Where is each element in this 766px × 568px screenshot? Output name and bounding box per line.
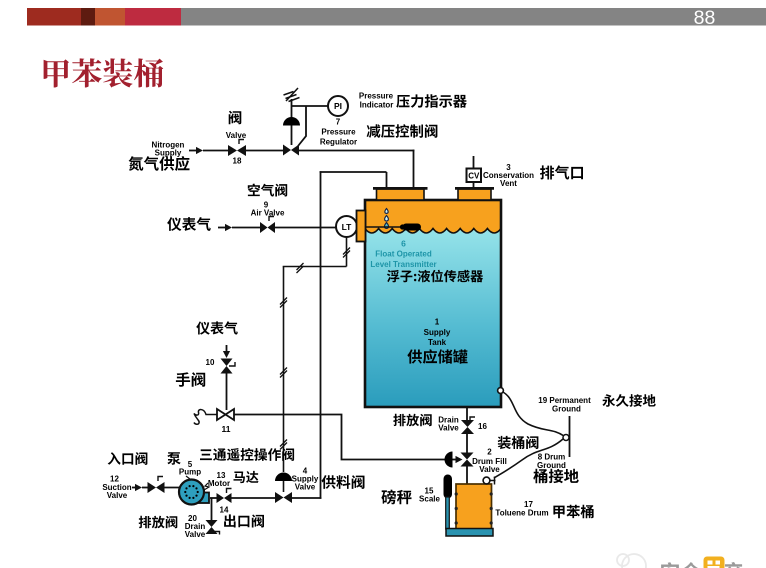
svg-text:Valve: Valve xyxy=(226,131,247,140)
svg-text:Vent: Vent xyxy=(500,179,517,188)
svg-text:1: 1 xyxy=(435,318,440,327)
svg-text:Scale: Scale xyxy=(419,495,440,504)
svg-text:Float Operated: Float Operated xyxy=(375,250,432,259)
svg-text:Ground: Ground xyxy=(552,405,581,414)
svg-text:Valve: Valve xyxy=(185,530,206,539)
svg-text:Regulator: Regulator xyxy=(320,138,357,147)
svg-text:2: 2 xyxy=(487,448,492,457)
svg-text:6: 6 xyxy=(401,239,406,249)
svg-text:Ground: Ground xyxy=(537,461,566,470)
svg-text:Pressure: Pressure xyxy=(321,128,356,137)
svg-text:Supply: Supply xyxy=(155,149,182,158)
svg-text:Motor: Motor xyxy=(208,479,230,488)
svg-text:Pressure: Pressure xyxy=(359,92,394,101)
svg-text:Indicator: Indicator xyxy=(360,101,394,110)
svg-text:Level Transmitter: Level Transmitter xyxy=(370,260,436,269)
svg-text:CV: CV xyxy=(468,171,480,180)
svg-text:Pump: Pump xyxy=(179,468,201,477)
svg-text:Tank: Tank xyxy=(428,338,447,347)
svg-text:PI: PI xyxy=(334,101,342,111)
svg-text:Air Valve: Air Valve xyxy=(251,209,285,218)
svg-text:Valve: Valve xyxy=(438,424,459,433)
svg-text:16: 16 xyxy=(478,422,487,431)
svg-text:Toluene Drum: Toluene Drum xyxy=(495,509,548,518)
svg-text:Supply: Supply xyxy=(424,328,451,337)
svg-text:11: 11 xyxy=(222,424,231,434)
svg-text:14: 14 xyxy=(220,506,229,515)
svg-text:Valve: Valve xyxy=(107,491,128,500)
svg-text:10: 10 xyxy=(206,358,215,367)
svg-text:88: 88 xyxy=(694,7,716,29)
svg-text:Valve: Valve xyxy=(295,483,316,492)
svg-text:7: 7 xyxy=(336,118,341,127)
svg-text:18: 18 xyxy=(233,157,242,166)
svg-text:LT: LT xyxy=(342,222,353,232)
svg-text:Valve: Valve xyxy=(479,465,500,474)
